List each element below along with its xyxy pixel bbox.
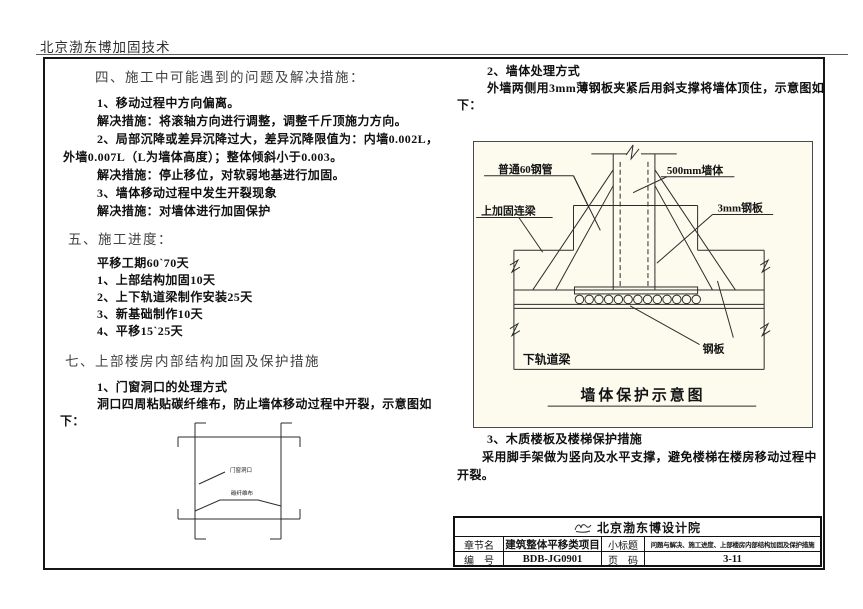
number-value: BDB-JG0901 [504,552,602,566]
body-line: 开裂。 [457,468,494,482]
body-line: 洞口四周粘贴碳纤维布，防止墙体移动过程中开裂，示意图如 [97,397,432,411]
leader-lines [476,176,773,345]
page-header: 北京渤东博加固技术 [40,36,171,56]
wall-section [591,145,676,290]
body-line: 3、墙体移动过程中发生开裂现象 [97,186,277,200]
body-line: 外墙0.007L（L为墙体高度）；整体倾斜小于0.003。 [63,150,343,164]
plate-label: 钢板 [703,342,725,356]
section-4-title: 四、施工中可能遇到的问题及解决措施： [95,66,365,86]
header-rule [36,54,848,55]
body-line: 4、平移15`25天 [97,324,183,338]
title-block-company-row: 北京渤东博设计院 [455,518,820,537]
diagonal-braces [533,170,736,290]
subtitle-label: 小标题 [602,537,645,552]
track-label: 下轨道梁 [523,352,571,366]
body-line: 解决措施：将滚轴方向进行调整，调整千斤顶施力方向。 [97,114,407,128]
opening-label: 门窗洞口 [230,466,252,474]
wall-protection-diagram: 普通60钢管 500mm墙体 上加固连梁 3mm钢板 钢板 下轨道梁 墙体保护示… [474,142,812,427]
body-line: 3、木质楼板及楼梯保护措施 [487,432,642,446]
body-line: 解决措施：停止移位，对软弱地基进行加固。 [97,168,345,182]
cfrp-label: 碳纤维布 [231,489,254,497]
body-line: 下： [60,414,85,428]
wall-label: 500mm墙体 [667,163,723,177]
section-7-title: 七、上部楼房内部结构加固及保护措施 [65,350,320,370]
diagram-caption: 墙体保护示意图 [581,386,706,404]
subtitle-value: 问题与解决、施工进度、上部楼房内部结构加固及保护措施 [645,537,820,552]
body-line: 外墙两侧用3mm薄钢板夹紧后用斜支撑将墙体顶住，示意图如 [487,81,824,95]
body-line: 采用脚手架做为竖向及水平支撑，避免楼梯在楼房移动过程中 [482,450,817,464]
break-symbol [626,145,639,159]
body-line: 3、新基础制作10天 [97,307,203,321]
body-line: 平移工期60`70天 [97,256,189,270]
break-symbol [760,260,770,272]
body-line: 1、门窗洞口的处理方式 [97,380,227,394]
body-line: 2、墙体处理方式 [487,64,580,78]
design-institute-logo-icon [574,522,592,533]
title-block: 北京渤东博设计院 章节名 建筑整体平移类项目 小标题 问题与解决、施工进度、上部… [453,516,822,567]
body-line: 1、移动过程中方向偏离。 [97,96,240,110]
body-line: 解决措施：对墙体进行加固保护 [97,204,271,218]
company-name: 北京渤东博设计院 [597,519,701,536]
pipe-label: 普通60钢管 [498,162,553,176]
title-block-row-2: 章节名 建筑整体平移类项目 小标题 问题与解决、施工进度、上部楼房内部结构加固及… [455,537,820,552]
chapter-label: 章节名 [455,537,504,552]
page-label: 页 码 [602,552,645,566]
body-line: 1、上部结构加固10天 [97,273,215,287]
body-line: 下： [457,98,482,112]
title-block-row-3: 编 号 BDB-JG0901 页 码 3-11 [455,552,820,566]
wall-protection-panel: 普通60钢管 500mm墙体 上加固连梁 3mm钢板 钢板 下轨道梁 墙体保护示… [473,141,813,428]
break-symbol [510,324,520,336]
plate3-label: 3mm钢板 [717,201,763,215]
opening-reinforcement-diagram: 门窗洞口 碳纤维布 [163,420,313,546]
break-symbol [510,260,520,272]
body-line: 2、局部沉降或差异沉降过大，差异沉降限值为：内墙0.002L， [97,132,438,146]
document-page: 北京渤东博加固技术 四、施工中可能遇到的问题及解决措施： 1、移动过程中方向偏离… [0,0,863,609]
break-symbol [760,324,770,336]
cfrp-strips [178,423,300,539]
beam-label: 上加固连梁 [481,203,536,217]
page-value: 3-11 [645,552,820,566]
chapter-value: 建筑整体平移类项目 [504,537,602,552]
section-5-title: 五、施工进度： [68,228,173,248]
number-label: 编 号 [455,552,504,566]
body-line: 2、上下轨道梁制作安装25天 [97,290,253,304]
